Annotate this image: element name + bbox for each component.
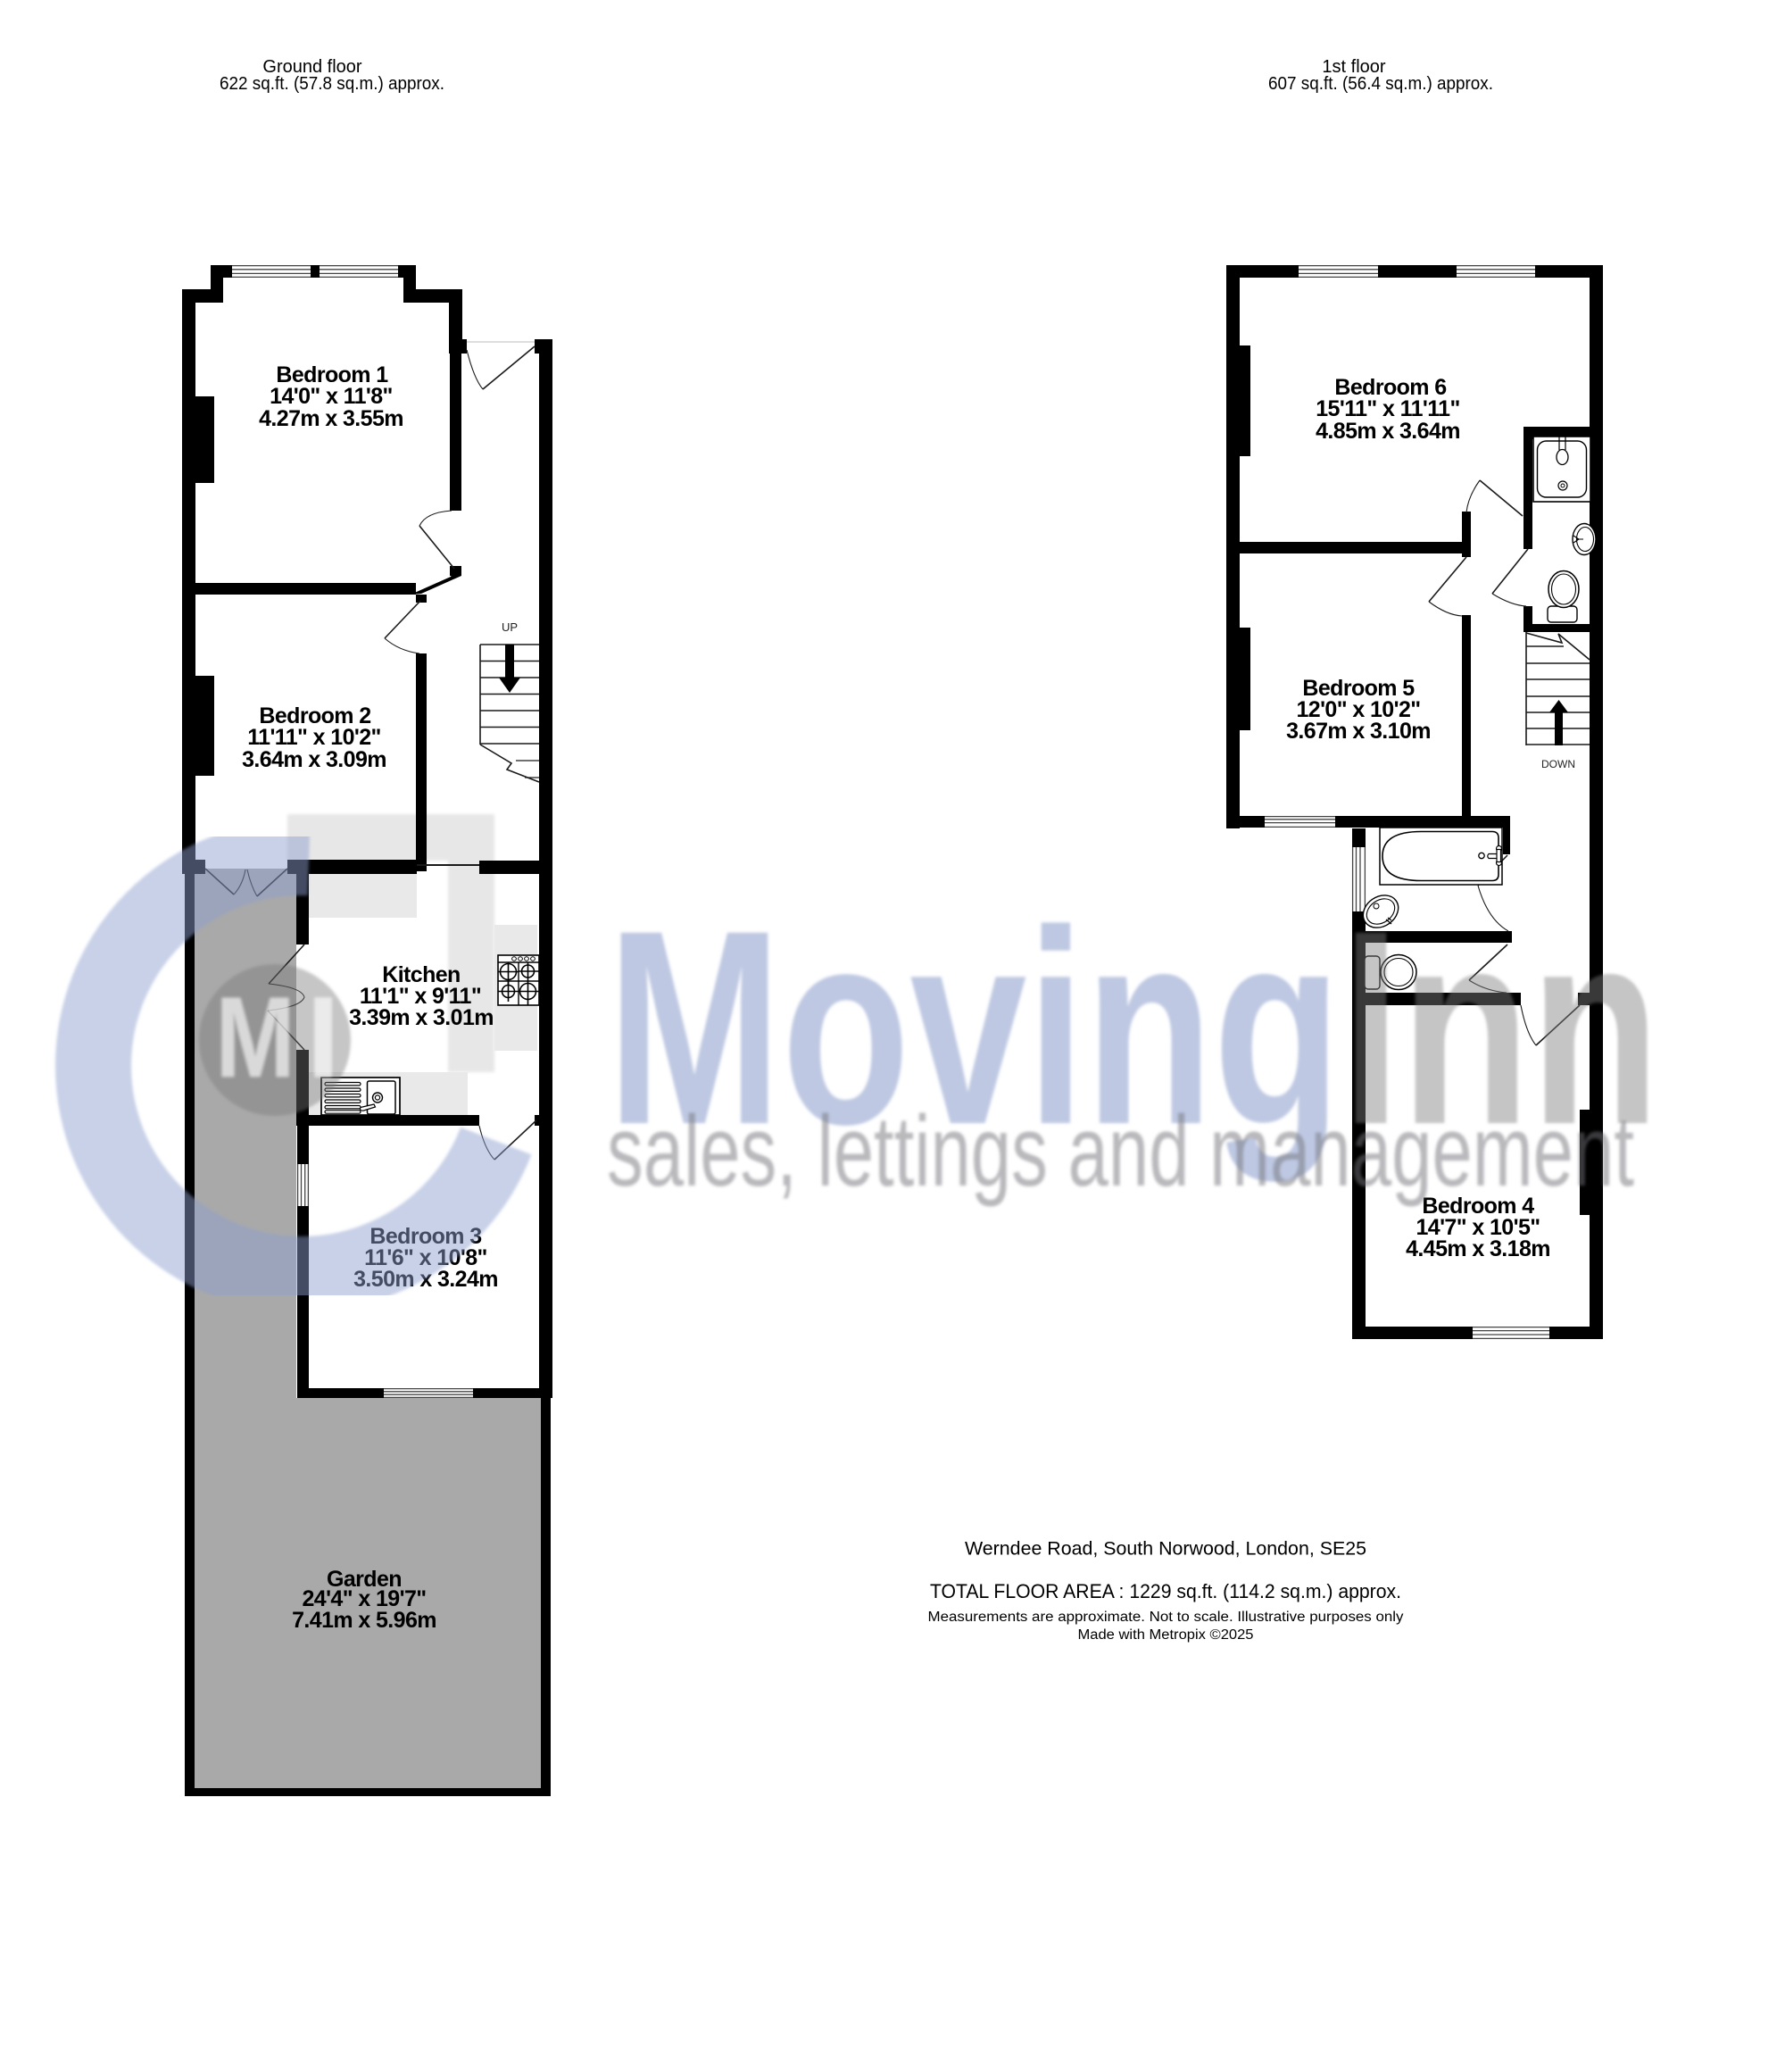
svg-text:4.85m x 3.64m: 4.85m x 3.64m (1316, 419, 1460, 444)
svg-text:M: M (216, 974, 295, 1102)
svg-text:sales, lettings and management: sales, lettings and management (607, 1095, 1634, 1207)
svg-text:TOTAL FLOOR AREA : 1229 sq.ft.: TOTAL FLOOR AREA : 1229 sq.ft. (114.2 sq… (930, 1580, 1401, 1602)
svg-text:4.45m x 3.18m: 4.45m x 3.18m (1406, 1236, 1550, 1261)
svg-text:Werndee Road, South Norwood, L: Werndee Road, South Norwood, London, SE2… (965, 1539, 1366, 1560)
svg-text:I: I (307, 974, 339, 1102)
svg-text:Measurements are approximate.: Measurements are approximate. Not to sca… (928, 1610, 1404, 1625)
svg-text:7.41m x 5.96m: 7.41m x 5.96m (292, 1608, 436, 1633)
svg-text:607 sq.ft. (56.4 sq.m.) approx: 607 sq.ft. (56.4 sq.m.) approx. (1268, 74, 1493, 94)
svg-text:3.39m x 3.01m: 3.39m x 3.01m (349, 1005, 494, 1030)
svg-text:UP: UP (502, 620, 518, 634)
svg-text:3.67m x 3.10m: 3.67m x 3.10m (1286, 719, 1431, 744)
svg-text:11'11" x 10'2": 11'11" x 10'2" (247, 725, 381, 750)
svg-text:14'0" x 11'8": 14'0" x 11'8" (270, 384, 393, 409)
svg-text:3.64m x 3.09m: 3.64m x 3.09m (242, 747, 386, 772)
svg-text:Made with Metropix ©2025: Made with Metropix ©2025 (1078, 1627, 1254, 1643)
svg-text:622 sq.ft. (57.8 sq.m.) approx: 622 sq.ft. (57.8 sq.m.) approx. (220, 74, 444, 94)
svg-text:4.27m x 3.55m: 4.27m x 3.55m (259, 406, 403, 431)
svg-text:15'11" x 11'11": 15'11" x 11'11" (1316, 396, 1459, 421)
svg-text:DOWN: DOWN (1541, 758, 1575, 770)
